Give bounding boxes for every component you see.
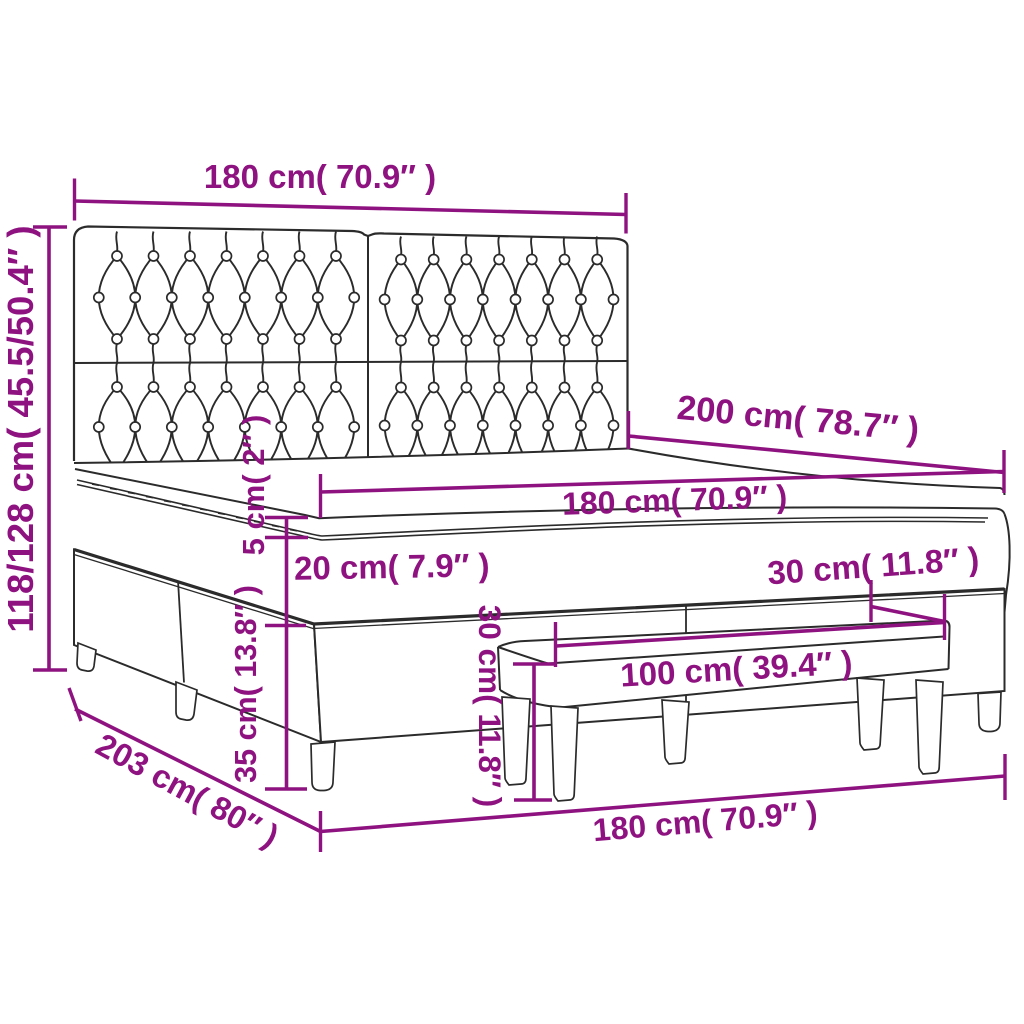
svg-text:118/128 cm( 45.5/50.4″ ): 118/128 cm( 45.5/50.4″ ): [0, 225, 41, 632]
svg-text:35 cm( 13.8″ ): 35 cm( 13.8″ ): [229, 585, 263, 783]
svg-text:30 cm( 11.8″ ): 30 cm( 11.8″ ): [472, 605, 508, 807]
svg-text:20 cm( 7.9″ ): 20 cm( 7.9″ ): [294, 546, 490, 586]
svg-text:5 cm( 2″ ): 5 cm( 2″ ): [236, 415, 271, 556]
svg-text:180 cm( 70.9″ ): 180 cm( 70.9″ ): [204, 158, 436, 195]
